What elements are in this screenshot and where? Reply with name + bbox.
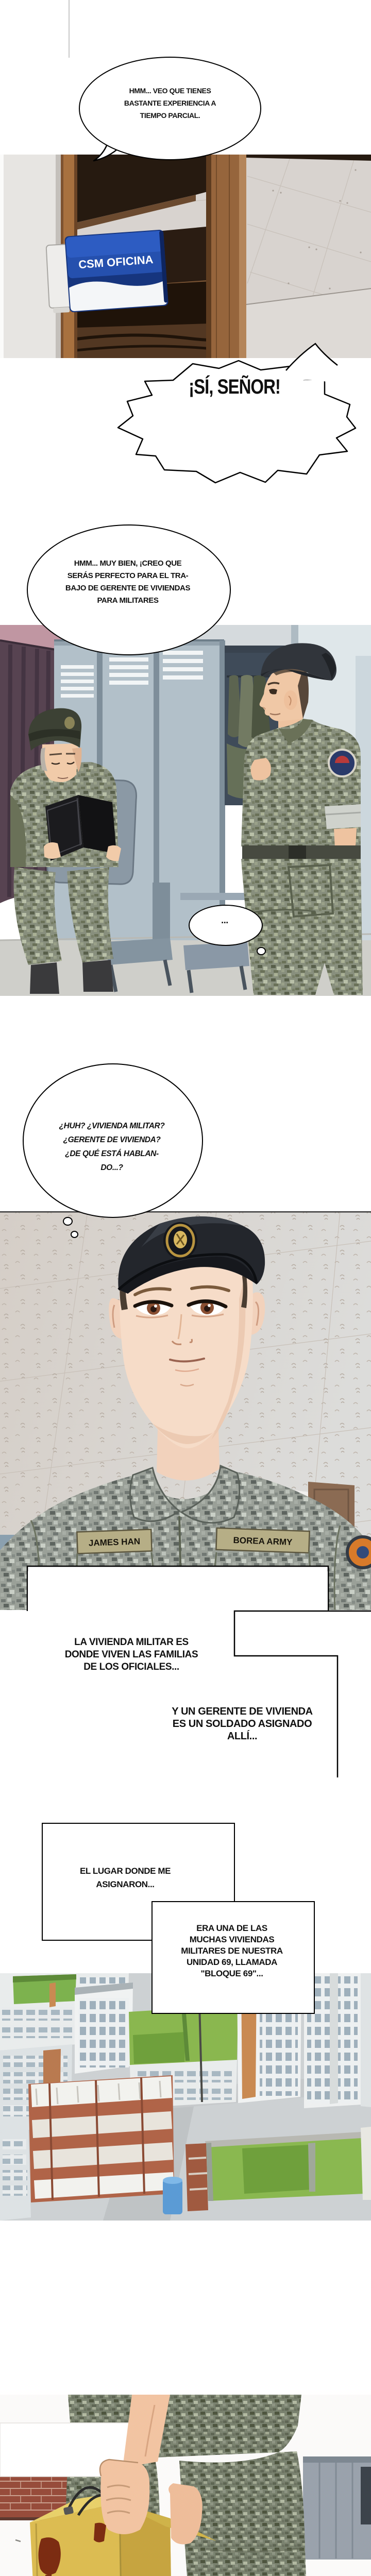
svg-text:JAMES HAN: JAMES HAN [89, 1536, 141, 1548]
svg-text:¡SÍ, SEÑOR!: ¡SÍ, SEÑOR! [189, 375, 280, 398]
svg-text:BOREA ARMY: BOREA ARMY [233, 1535, 293, 1547]
